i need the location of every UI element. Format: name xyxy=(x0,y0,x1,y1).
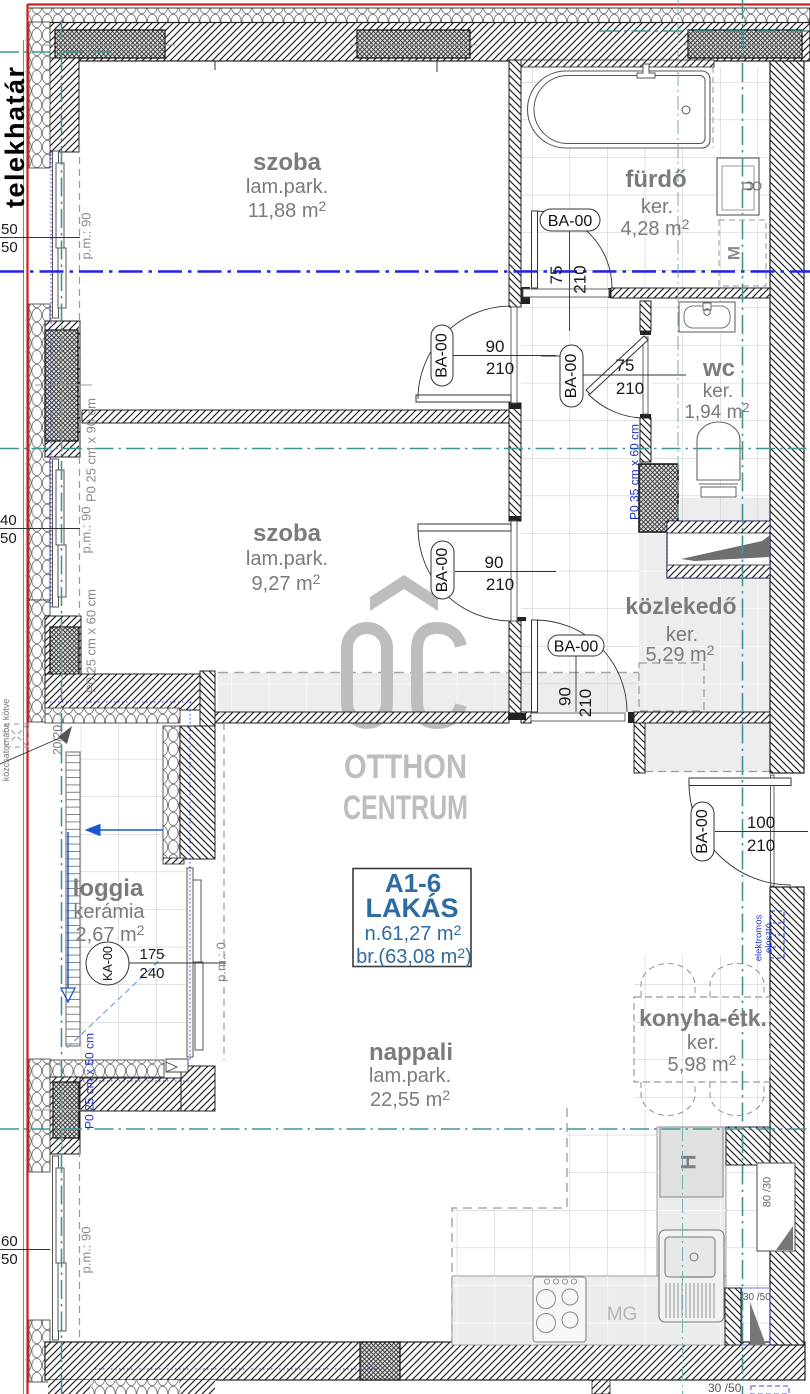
svg-text:lam.park.: lam.park. xyxy=(369,1065,451,1087)
svg-text:közlekedő: közlekedő xyxy=(625,593,736,619)
svg-text:H: H xyxy=(678,1154,701,1169)
svg-text:BA-00: BA-00 xyxy=(563,354,580,399)
svg-text:1,94 m2: 1,94 m2 xyxy=(684,400,749,423)
svg-text:75: 75 xyxy=(616,356,635,375)
svg-text:ker.: ker. xyxy=(641,196,673,218)
svg-text:50: 50 xyxy=(0,530,17,547)
svg-text:OTTHON: OTTHON xyxy=(344,748,467,786)
svg-text:P0 35 cm x 60 cm: P0 35 cm x 60 cm xyxy=(628,424,642,520)
svg-text:ker.: ker. xyxy=(703,381,734,402)
svg-text:kerámia: kerámia xyxy=(73,901,145,923)
svg-text:210: 210 xyxy=(616,379,644,398)
svg-text:210: 210 xyxy=(576,689,595,717)
svg-text:MG: MG xyxy=(607,1304,638,1325)
svg-text:50: 50 xyxy=(1,1251,18,1268)
svg-text:CENTRUM: CENTRUM xyxy=(343,789,468,827)
svg-text:60: 60 xyxy=(1,1233,18,1250)
svg-text:240: 240 xyxy=(139,965,164,982)
svg-text:br.(63,08 m2): br.(63,08 m2) xyxy=(356,945,472,968)
svg-text:konyha-étk.: konyha-étk. xyxy=(639,1005,767,1031)
svg-text:22,55 m2: 22,55 m2 xyxy=(370,1087,450,1111)
svg-text:90: 90 xyxy=(485,553,504,572)
svg-text:lam.park.: lam.park. xyxy=(246,548,328,570)
svg-text:30 /50: 30 /50 xyxy=(743,1292,771,1303)
svg-text:KA-00: KA-00 xyxy=(101,946,115,981)
svg-text:BA-00: BA-00 xyxy=(554,639,599,656)
svg-text:210: 210 xyxy=(486,575,514,594)
svg-text:közcsatornába kötve: közcsatornába kötve xyxy=(1,699,11,782)
svg-text:175: 175 xyxy=(139,946,164,963)
svg-text:lam.park.: lam.park. xyxy=(246,176,328,198)
svg-text:30 /50: 30 /50 xyxy=(708,1381,742,1394)
svg-text:wc: wc xyxy=(702,355,735,382)
svg-text:90: 90 xyxy=(556,687,575,706)
svg-text:p.m.: 0: p.m.: 0 xyxy=(214,942,229,982)
svg-text:40: 40 xyxy=(0,512,17,529)
svg-text:210: 210 xyxy=(571,265,590,293)
svg-text:n.61,27 m2: n.61,27 m2 xyxy=(365,922,462,945)
svg-text:fürdő: fürdő xyxy=(625,166,686,193)
svg-text:BA-00: BA-00 xyxy=(434,548,451,593)
svg-text:P0 25 cm x 50 cm: P0 25 cm x 50 cm xyxy=(83,1033,97,1129)
svg-text:BA-00: BA-00 xyxy=(434,333,451,378)
svg-text:nappali: nappali xyxy=(369,1039,453,1066)
svg-text:LAKÁS: LAKÁS xyxy=(366,892,459,923)
svg-text:90: 90 xyxy=(486,337,505,356)
svg-text:p.m.: 90: p.m.: 90 xyxy=(79,1227,94,1274)
svg-text:80 /30: 80 /30 xyxy=(762,1177,774,1208)
svg-text:p.m.: 90: p.m.: 90 xyxy=(79,507,94,554)
svg-text:BA-00: BA-00 xyxy=(548,213,593,230)
svg-text:100: 100 xyxy=(747,813,775,832)
svg-text:50: 50 xyxy=(1,221,18,238)
svg-text:11,88 m2: 11,88 m2 xyxy=(248,198,327,222)
svg-text:75: 75 xyxy=(547,266,566,285)
svg-text:210: 210 xyxy=(747,836,775,855)
svg-text:loggia: loggia xyxy=(73,875,144,902)
svg-text:50: 50 xyxy=(1,239,18,256)
svg-text:szoba: szoba xyxy=(253,520,322,547)
svg-text:ker.: ker. xyxy=(687,1032,719,1054)
svg-text:5,98 m2: 5,98 m2 xyxy=(668,1052,737,1076)
svg-text:ker.: ker. xyxy=(666,624,698,646)
svg-text:5,29 m2: 5,29 m2 xyxy=(646,642,715,666)
svg-text:p.m.: 90: p.m.: 90 xyxy=(79,213,94,260)
svg-text:210: 210 xyxy=(486,359,514,378)
svg-text:9,27 m2: 9,27 m2 xyxy=(252,571,321,595)
svg-text:P0 25 cm x 90 cm: P0 25 cm x 90 cm xyxy=(84,398,99,502)
svg-text:szoba: szoba xyxy=(253,149,322,176)
svg-text:M: M xyxy=(725,246,744,260)
svg-text:telekhatár: telekhatár xyxy=(0,65,30,208)
svg-text:BA-00: BA-00 xyxy=(694,809,711,854)
svg-text:4,28 m2: 4,28 m2 xyxy=(621,216,690,240)
svg-text:P0 25 cm x 60 cm: P0 25 cm x 60 cm xyxy=(84,589,99,693)
svg-text:elosztó: elosztó xyxy=(764,923,775,953)
